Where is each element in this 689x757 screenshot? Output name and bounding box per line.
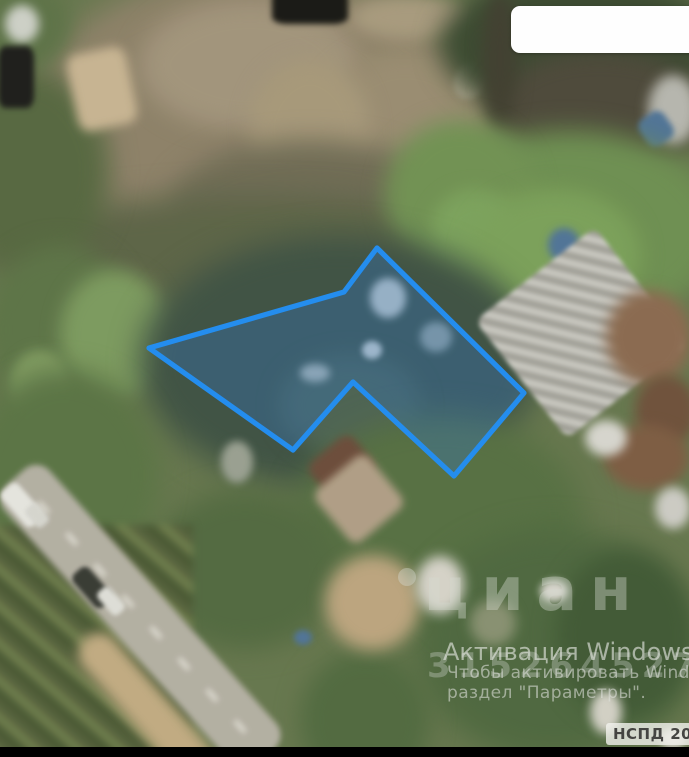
parcel-boundary[interactable] (149, 248, 524, 476)
cian-logo-text: циан (424, 560, 644, 620)
windows-activation-line3: раздел "Параметры". (447, 683, 646, 703)
bottom-black-bar (0, 747, 689, 757)
map-pin-icon (398, 568, 416, 586)
map-screenshot: циан 315264527 Активация Windows Чтобы а… (0, 0, 689, 757)
cian-watermark: циан (398, 560, 644, 620)
top-right-white-panel (511, 6, 689, 53)
nspd-badge: НСПД 2025 (606, 723, 689, 745)
windows-activation-title: Активация Windows (443, 638, 689, 666)
windows-activation-line2: Чтобы активировать Wind (447, 663, 689, 683)
